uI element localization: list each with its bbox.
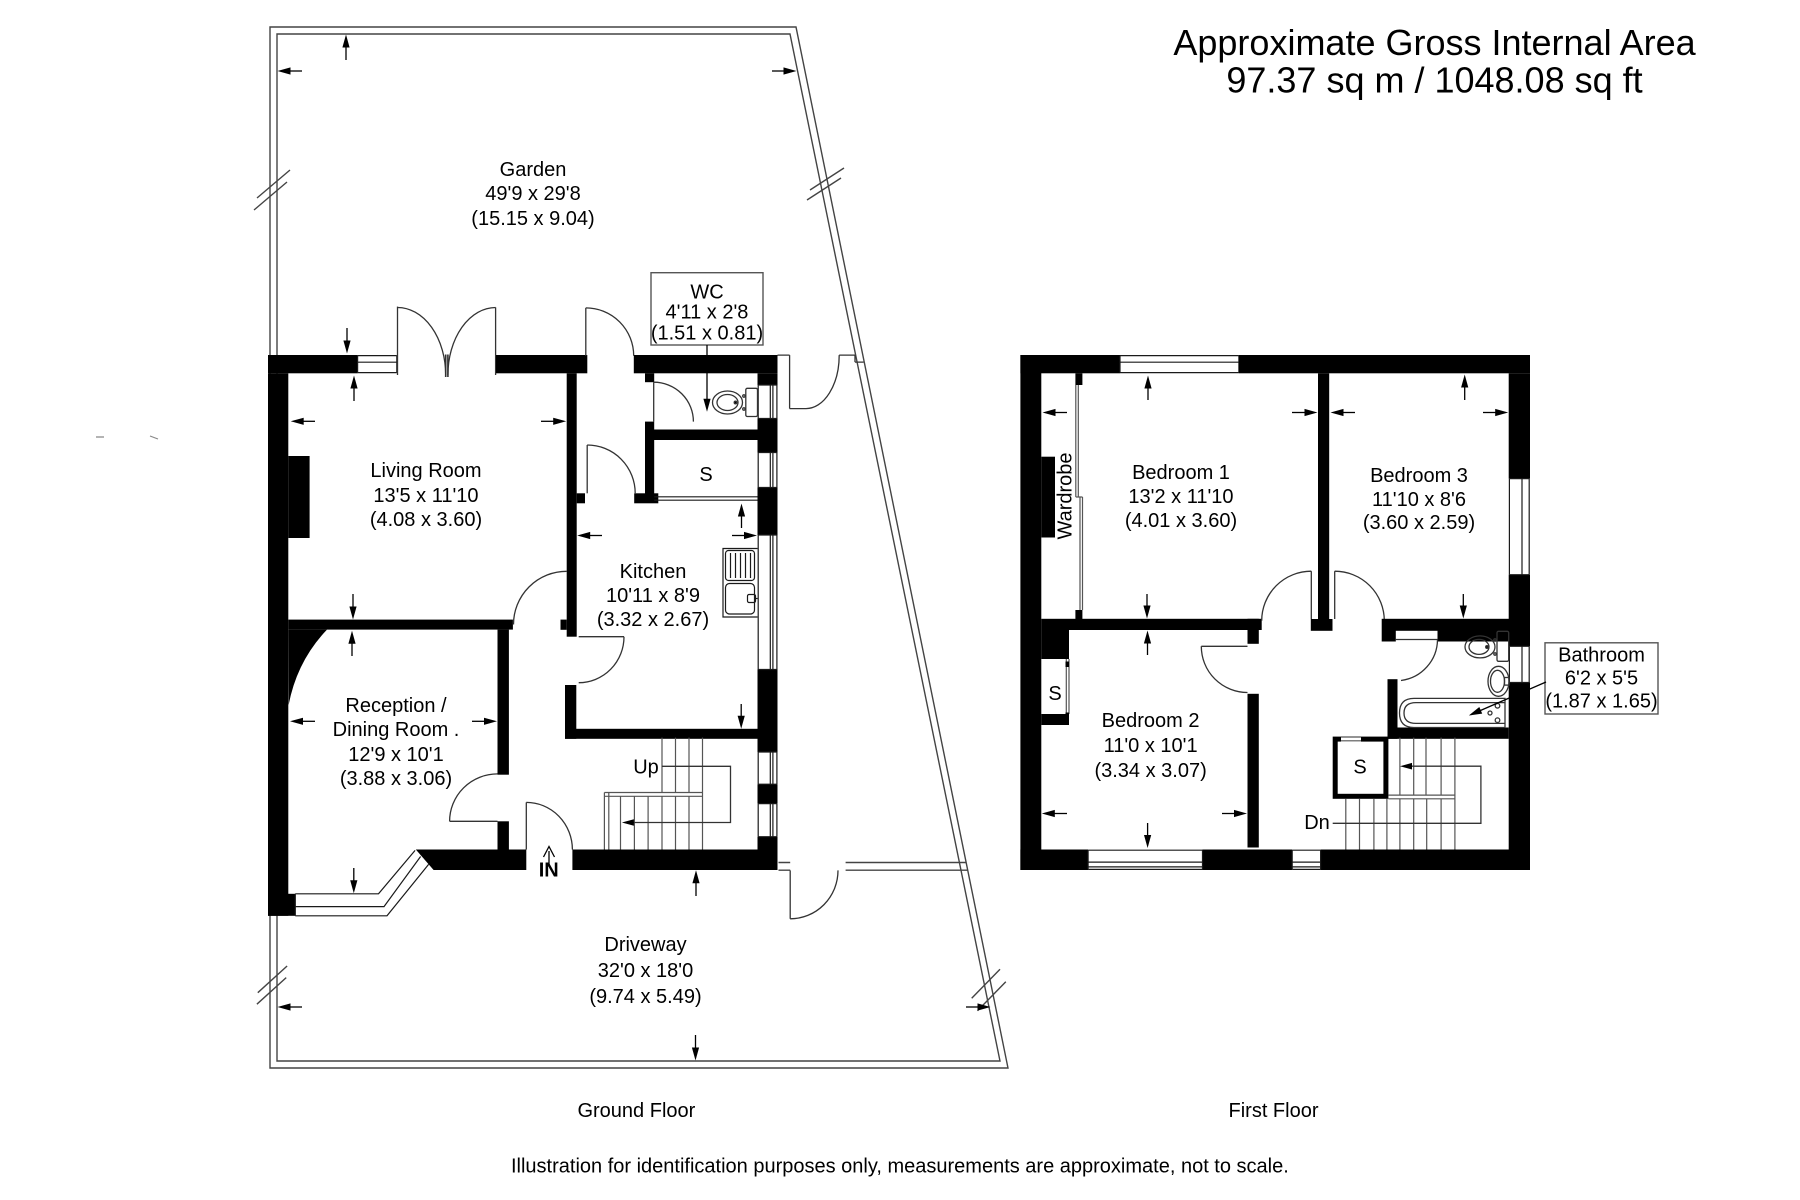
svg-text:Garden: Garden [500, 159, 567, 181]
svg-text:(4.01 x 3.60): (4.01 x 3.60) [1125, 510, 1237, 532]
svg-text:Kitchen: Kitchen [620, 561, 687, 583]
svg-text:S: S [699, 464, 712, 486]
svg-text:Illustration for identificatio: Illustration for identification purposes… [511, 1156, 1289, 1178]
svg-text:Bedroom 3: Bedroom 3 [1370, 465, 1468, 487]
svg-text:S: S [1353, 757, 1366, 779]
svg-text:IN: IN [539, 860, 559, 882]
svg-text:6'2 x 5'5: 6'2 x 5'5 [1565, 668, 1638, 690]
svg-text:First Floor: First Floor [1229, 1100, 1319, 1122]
svg-text:11'10 x 8'6: 11'10 x 8'6 [1372, 489, 1466, 511]
svg-text:Approximate Gross Internal Are: Approximate Gross Internal Area [1173, 22, 1696, 63]
svg-text:(1.51 x 0.81): (1.51 x 0.81) [651, 323, 763, 345]
svg-text:Dn: Dn [1304, 812, 1330, 834]
svg-text:(3.34 x 3.07): (3.34 x 3.07) [1094, 760, 1206, 782]
svg-text:13'2 x 11'10: 13'2 x 11'10 [1128, 486, 1233, 508]
svg-text:49'9 x 29'8: 49'9 x 29'8 [485, 183, 581, 205]
svg-text:(1.87 x 1.65): (1.87 x 1.65) [1545, 691, 1657, 713]
svg-text:13'5 x 11'10: 13'5 x 11'10 [373, 485, 478, 507]
svg-text:(3.88 x 3.06): (3.88 x 3.06) [340, 768, 452, 790]
svg-text:(15.15 x 9.04): (15.15 x 9.04) [471, 208, 594, 230]
svg-text:97.37 sq m / 1048.08 sq ft: 97.37 sq m / 1048.08 sq ft [1226, 60, 1642, 101]
svg-text:32'0 x 18'0: 32'0 x 18'0 [598, 960, 694, 982]
svg-text:Reception /: Reception / [345, 695, 447, 717]
svg-text:(4.08 x 3.60): (4.08 x 3.60) [370, 509, 482, 531]
svg-text:Bedroom 2: Bedroom 2 [1102, 710, 1200, 732]
svg-text:WC: WC [690, 282, 723, 304]
svg-text:11'0 x 10'1: 11'0 x 10'1 [1104, 735, 1198, 757]
svg-text:Wardrobe: Wardrobe [1055, 452, 1077, 539]
svg-text:Up: Up [633, 757, 659, 779]
svg-text:10'11 x 8'9: 10'11 x 8'9 [606, 585, 700, 607]
svg-text:S: S [1048, 683, 1061, 705]
svg-text:Ground Floor: Ground Floor [577, 1100, 695, 1122]
svg-text:4'11 x 2'8: 4'11 x 2'8 [666, 302, 749, 324]
svg-text:12'9 x 10'1: 12'9 x 10'1 [348, 744, 444, 766]
svg-text:Driveway: Driveway [604, 934, 686, 956]
svg-text:Bedroom 1: Bedroom 1 [1132, 462, 1230, 484]
svg-text:Living Room: Living Room [370, 460, 481, 482]
svg-text:(9.74 x 5.49): (9.74 x 5.49) [589, 986, 701, 1008]
svg-text:Dining Room .: Dining Room . [333, 719, 460, 741]
svg-text:Bathroom: Bathroom [1558, 645, 1645, 667]
svg-text:(3.60 x 2.59): (3.60 x 2.59) [1363, 512, 1475, 534]
svg-text:(3.32 x 2.67): (3.32 x 2.67) [597, 609, 709, 631]
